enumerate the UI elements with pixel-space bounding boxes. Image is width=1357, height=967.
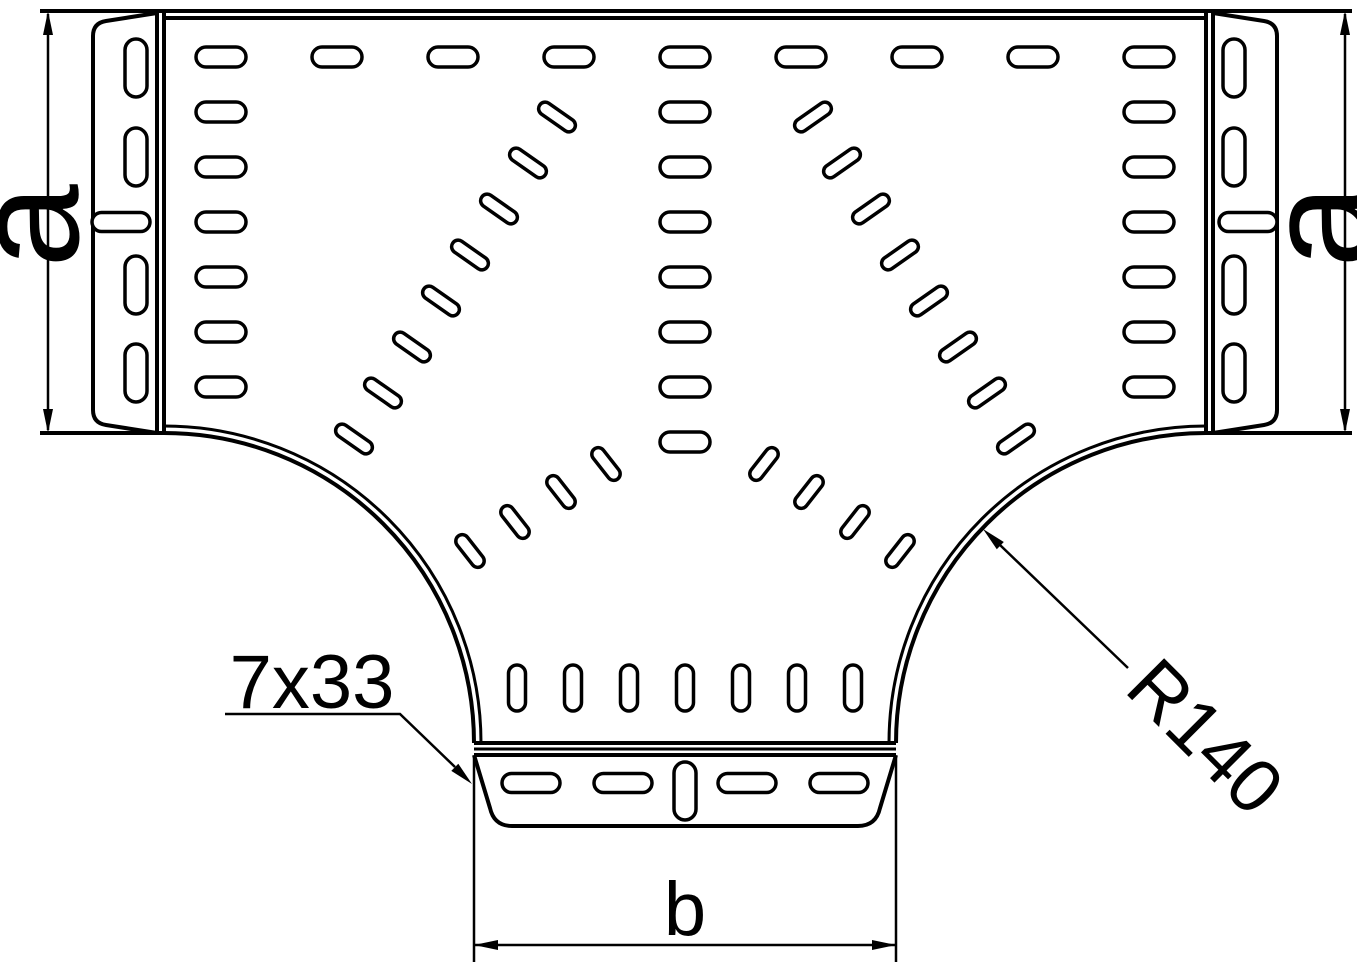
right-column-slots bbox=[1124, 102, 1174, 397]
perforation-slot bbox=[810, 774, 868, 793]
perforation-slot bbox=[507, 146, 549, 181]
perforation-slot bbox=[733, 665, 750, 711]
left-diagonal-slots bbox=[333, 100, 578, 457]
perforation-slot bbox=[391, 330, 433, 365]
perforation-slot bbox=[660, 267, 710, 287]
perforation-slot bbox=[908, 284, 950, 319]
perforation-slot bbox=[621, 665, 638, 711]
right-fan-slots bbox=[747, 445, 917, 570]
left-column-slots bbox=[196, 102, 246, 397]
bottom-flange-vertical-slot bbox=[674, 762, 696, 820]
perforation-slot bbox=[544, 473, 578, 511]
radius-callout-r140: R140 bbox=[1111, 643, 1300, 832]
slot-count-callout-7x33: 7x33 bbox=[230, 640, 395, 725]
perforation-slot bbox=[449, 238, 491, 273]
dimension-label-b: b bbox=[664, 867, 706, 952]
dimension-label-a-left: a bbox=[0, 184, 110, 268]
perforation-slot bbox=[594, 774, 652, 793]
perforation-slot bbox=[125, 39, 147, 97]
perforation-slot bbox=[420, 284, 462, 319]
perforation-slot bbox=[1124, 157, 1174, 177]
perforation-slot bbox=[674, 762, 696, 820]
perforation-slot bbox=[660, 322, 710, 342]
perforation-slot bbox=[1008, 47, 1058, 67]
perforation-slot bbox=[333, 422, 375, 457]
perforation-slot bbox=[792, 100, 834, 135]
perforation-slot bbox=[196, 212, 246, 232]
technical-drawing: a a b 7x33 R140 bbox=[0, 0, 1357, 967]
perforation-slot bbox=[747, 445, 781, 483]
perforation-slot bbox=[883, 532, 917, 570]
perforation-slot bbox=[937, 330, 979, 365]
perforation-slot bbox=[196, 322, 246, 342]
perforation-slot bbox=[362, 376, 404, 411]
perforation-slot bbox=[677, 665, 694, 711]
perforation-slot bbox=[1124, 47, 1174, 67]
dim-a-right-arrow-top bbox=[1340, 11, 1350, 35]
perforation-slot bbox=[544, 47, 594, 67]
dim-b-arrow-left bbox=[474, 940, 498, 950]
perforation-slot bbox=[196, 102, 246, 122]
callout-r140-leader bbox=[1000, 545, 1128, 668]
perforation-slot bbox=[660, 102, 710, 122]
perforation-slot bbox=[478, 192, 520, 227]
perforation-slot bbox=[789, 665, 806, 711]
perforation-slot bbox=[536, 100, 578, 135]
center-column-slots bbox=[660, 102, 710, 452]
perforation-slot bbox=[660, 157, 710, 177]
dim-b-arrow-right bbox=[872, 940, 896, 950]
perforation-slot bbox=[196, 267, 246, 287]
perforation-slot bbox=[776, 47, 826, 67]
perforation-slot bbox=[845, 665, 862, 711]
perforation-slot bbox=[196, 47, 246, 67]
tray-outline bbox=[40, 11, 1352, 962]
dim-a-left-arrow-bottom bbox=[43, 409, 53, 433]
perforation-slot bbox=[792, 473, 826, 511]
perforation-slot bbox=[850, 192, 892, 227]
right-diagonal-slots bbox=[792, 100, 1037, 457]
dim-a-right-arrow-bottom bbox=[1340, 409, 1350, 433]
perforation-slot bbox=[660, 47, 710, 67]
perforation-slot bbox=[196, 157, 246, 177]
perforation-slot bbox=[589, 445, 623, 483]
perforation-slot bbox=[1223, 39, 1245, 97]
perforation-slot bbox=[995, 422, 1037, 457]
perforation-slot bbox=[1124, 212, 1174, 232]
perforation-slot bbox=[565, 665, 582, 711]
perforation-slot bbox=[1124, 267, 1174, 287]
branch-vertical-slots bbox=[509, 665, 862, 711]
perforation-slot bbox=[838, 503, 872, 541]
perforation-slot bbox=[1124, 377, 1174, 397]
dimension-label-a-right: a bbox=[1234, 184, 1357, 268]
perforation-slot bbox=[453, 532, 487, 570]
perforation-slot bbox=[502, 774, 560, 793]
perforation-slot bbox=[1124, 102, 1174, 122]
perforation-slot bbox=[660, 377, 710, 397]
top-row-slots bbox=[196, 47, 1174, 67]
perforation-slot bbox=[660, 212, 710, 232]
perforation-slot bbox=[660, 432, 710, 452]
perforation-slot bbox=[879, 238, 921, 273]
perforation-slot bbox=[718, 774, 776, 793]
perforation-slot bbox=[125, 128, 147, 186]
perforation-slot bbox=[1223, 128, 1245, 186]
perforation-slot bbox=[821, 146, 863, 181]
perforation-slot bbox=[125, 256, 147, 314]
perforation-slot bbox=[966, 376, 1008, 411]
perforation-slot bbox=[1223, 344, 1245, 402]
perforation-slot bbox=[125, 344, 147, 402]
perforation-slot bbox=[196, 377, 246, 397]
perforation-slot bbox=[312, 47, 362, 67]
dim-a-left-arrow-top bbox=[43, 11, 53, 35]
drawing-canvas: a a b 7x33 R140 bbox=[0, 0, 1357, 967]
perforation-slot bbox=[428, 47, 478, 67]
perforation-slot bbox=[1124, 322, 1174, 342]
perforation-slot bbox=[892, 47, 942, 67]
left-fan-slots bbox=[453, 445, 623, 570]
perforation-slot bbox=[509, 665, 526, 711]
perforation-slot bbox=[498, 503, 532, 541]
